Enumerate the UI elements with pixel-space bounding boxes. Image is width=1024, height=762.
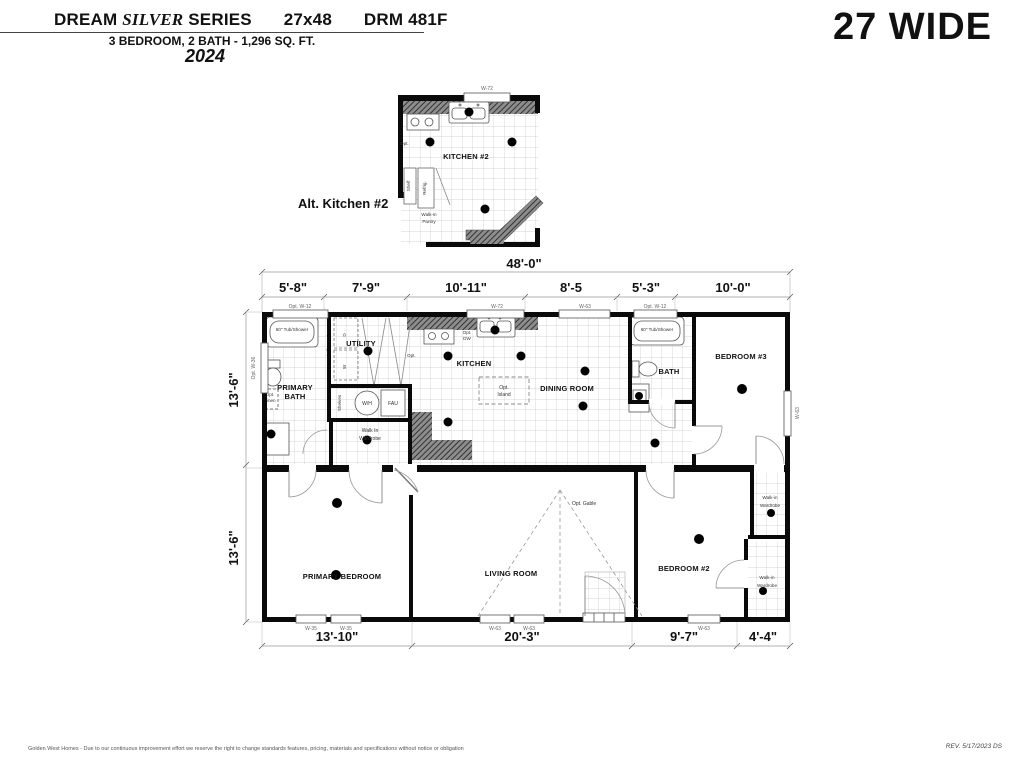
tub-label-2: 60" Tub/Shower [641, 327, 674, 332]
floorplan-sheet: DREAM SILVER SERIES 27x48 DRM 481F 3 BED… [0, 0, 1024, 762]
dim-top-3: 8'-5 [560, 280, 582, 295]
opt-door-label: Opt. [407, 353, 416, 358]
room-primary-bedroom: PRIMARY BEDROOM [303, 572, 381, 581]
dim-bottom-3: 4'-4" [749, 629, 777, 644]
room-primary-bath-1: PRIMARY [277, 383, 313, 392]
alt-pantry-label-2: Pantry [422, 219, 436, 224]
wardrobe3-floor [753, 468, 785, 536]
dim-top-5: 10'-0" [715, 280, 750, 295]
room-primary-bath-2: BATH [284, 392, 305, 401]
kitchen-range-icon [424, 329, 454, 344]
dim-top-0: 5'-8" [279, 280, 307, 295]
dim-overall: 48'-0" [506, 256, 541, 271]
entry-door-icon [583, 613, 625, 622]
window-label-bottom5: W-63 [698, 626, 710, 632]
walkin-wardrobe-1a: Walk In [362, 428, 379, 434]
island-label-1: Opt. [499, 385, 508, 391]
window-label-top2: W-72 [491, 304, 503, 310]
dim-left-lower: 13'-6" [226, 530, 241, 565]
tub-label-1: 60" Tub/Shower [276, 327, 309, 332]
dim-left-upper: 13'-6" [226, 372, 241, 407]
walkin-wardrobe-1b: Wardrobe [359, 436, 381, 442]
alt-kitchen-window [464, 93, 510, 102]
dim-top-2: 10'-11" [445, 280, 487, 295]
alt-kitchen-range-icon [407, 114, 439, 130]
window-label-top4: Opt. W-12 [644, 304, 667, 310]
dim-top-4: 5'-3" [632, 280, 660, 295]
alt-pantry-label-1: Walk-in [421, 212, 437, 217]
opt-dw-1: Opt. [463, 330, 472, 335]
room-living: LIVING ROOM [485, 569, 538, 578]
walkin-wardrobe-2a: Walk-in [762, 495, 778, 500]
opt-gable-label: Opt. Gable [572, 501, 596, 507]
dim-bottom-2: 9'-7" [670, 629, 698, 644]
room-dining: DINING ROOM [540, 384, 594, 393]
room-utility: UTILITY [346, 339, 376, 348]
window-label-left: Opt. W-36 [251, 356, 257, 379]
window-label-bottom1: W-35 [305, 626, 317, 632]
room-kitchen: KITCHEN [457, 359, 492, 368]
room-bedroom3: BEDROOM #3 [715, 352, 767, 361]
alt-kitchen-inset: W-72 Shelf Refrig. Walk-in Pantry Opt. [398, 86, 543, 247]
room-bedroom2: BEDROOM #2 [658, 564, 710, 573]
alt-kitchen-window-label: W-72 [481, 86, 493, 92]
kitchen-counter-top [407, 317, 538, 330]
entry-landing [585, 572, 625, 616]
alt-refrig-label: Refrig. [422, 181, 427, 195]
fau-label: FAU [388, 401, 398, 407]
opt-dw-2: DW [463, 336, 471, 341]
alt-shelf-label: Shelf [406, 180, 411, 191]
shelves-label: Shelves [337, 394, 342, 411]
window-label-top3: W-63 [579, 304, 591, 310]
washer-label: W [342, 364, 347, 369]
alt-kitchen-room-label: KITCHEN #2 [443, 152, 489, 161]
island-label-2: Island [497, 392, 511, 398]
walkin-wardrobe-2b: Wardrobe [760, 503, 780, 508]
walkin-wardrobe-3a: Walk-in [759, 575, 775, 580]
wh-label: W/H [362, 401, 372, 407]
walkin-wardrobe-3b: Wardrobe [757, 583, 777, 588]
window-label-bottom4: W-63 [523, 626, 535, 632]
alt-bar-counter-2 [470, 236, 504, 244]
window-label-right: W-63 [795, 407, 801, 419]
dim-top-1: 7'-9" [352, 280, 380, 295]
main-floorplan: 60" Tub/Shower Opt. Linen D W Opt. Shelf… [251, 304, 801, 632]
window-label-top1: Opt. W-12 [289, 304, 312, 310]
window-label-bottom2: W-35 [340, 626, 352, 632]
room-bath: BATH [658, 367, 679, 376]
window-label-bottom3: W-63 [489, 626, 501, 632]
floorplan-drawing: W-72 Shelf Refrig. Walk-in Pantry Opt. [0, 0, 1024, 762]
alt-opt-label: Opt. [400, 141, 409, 146]
